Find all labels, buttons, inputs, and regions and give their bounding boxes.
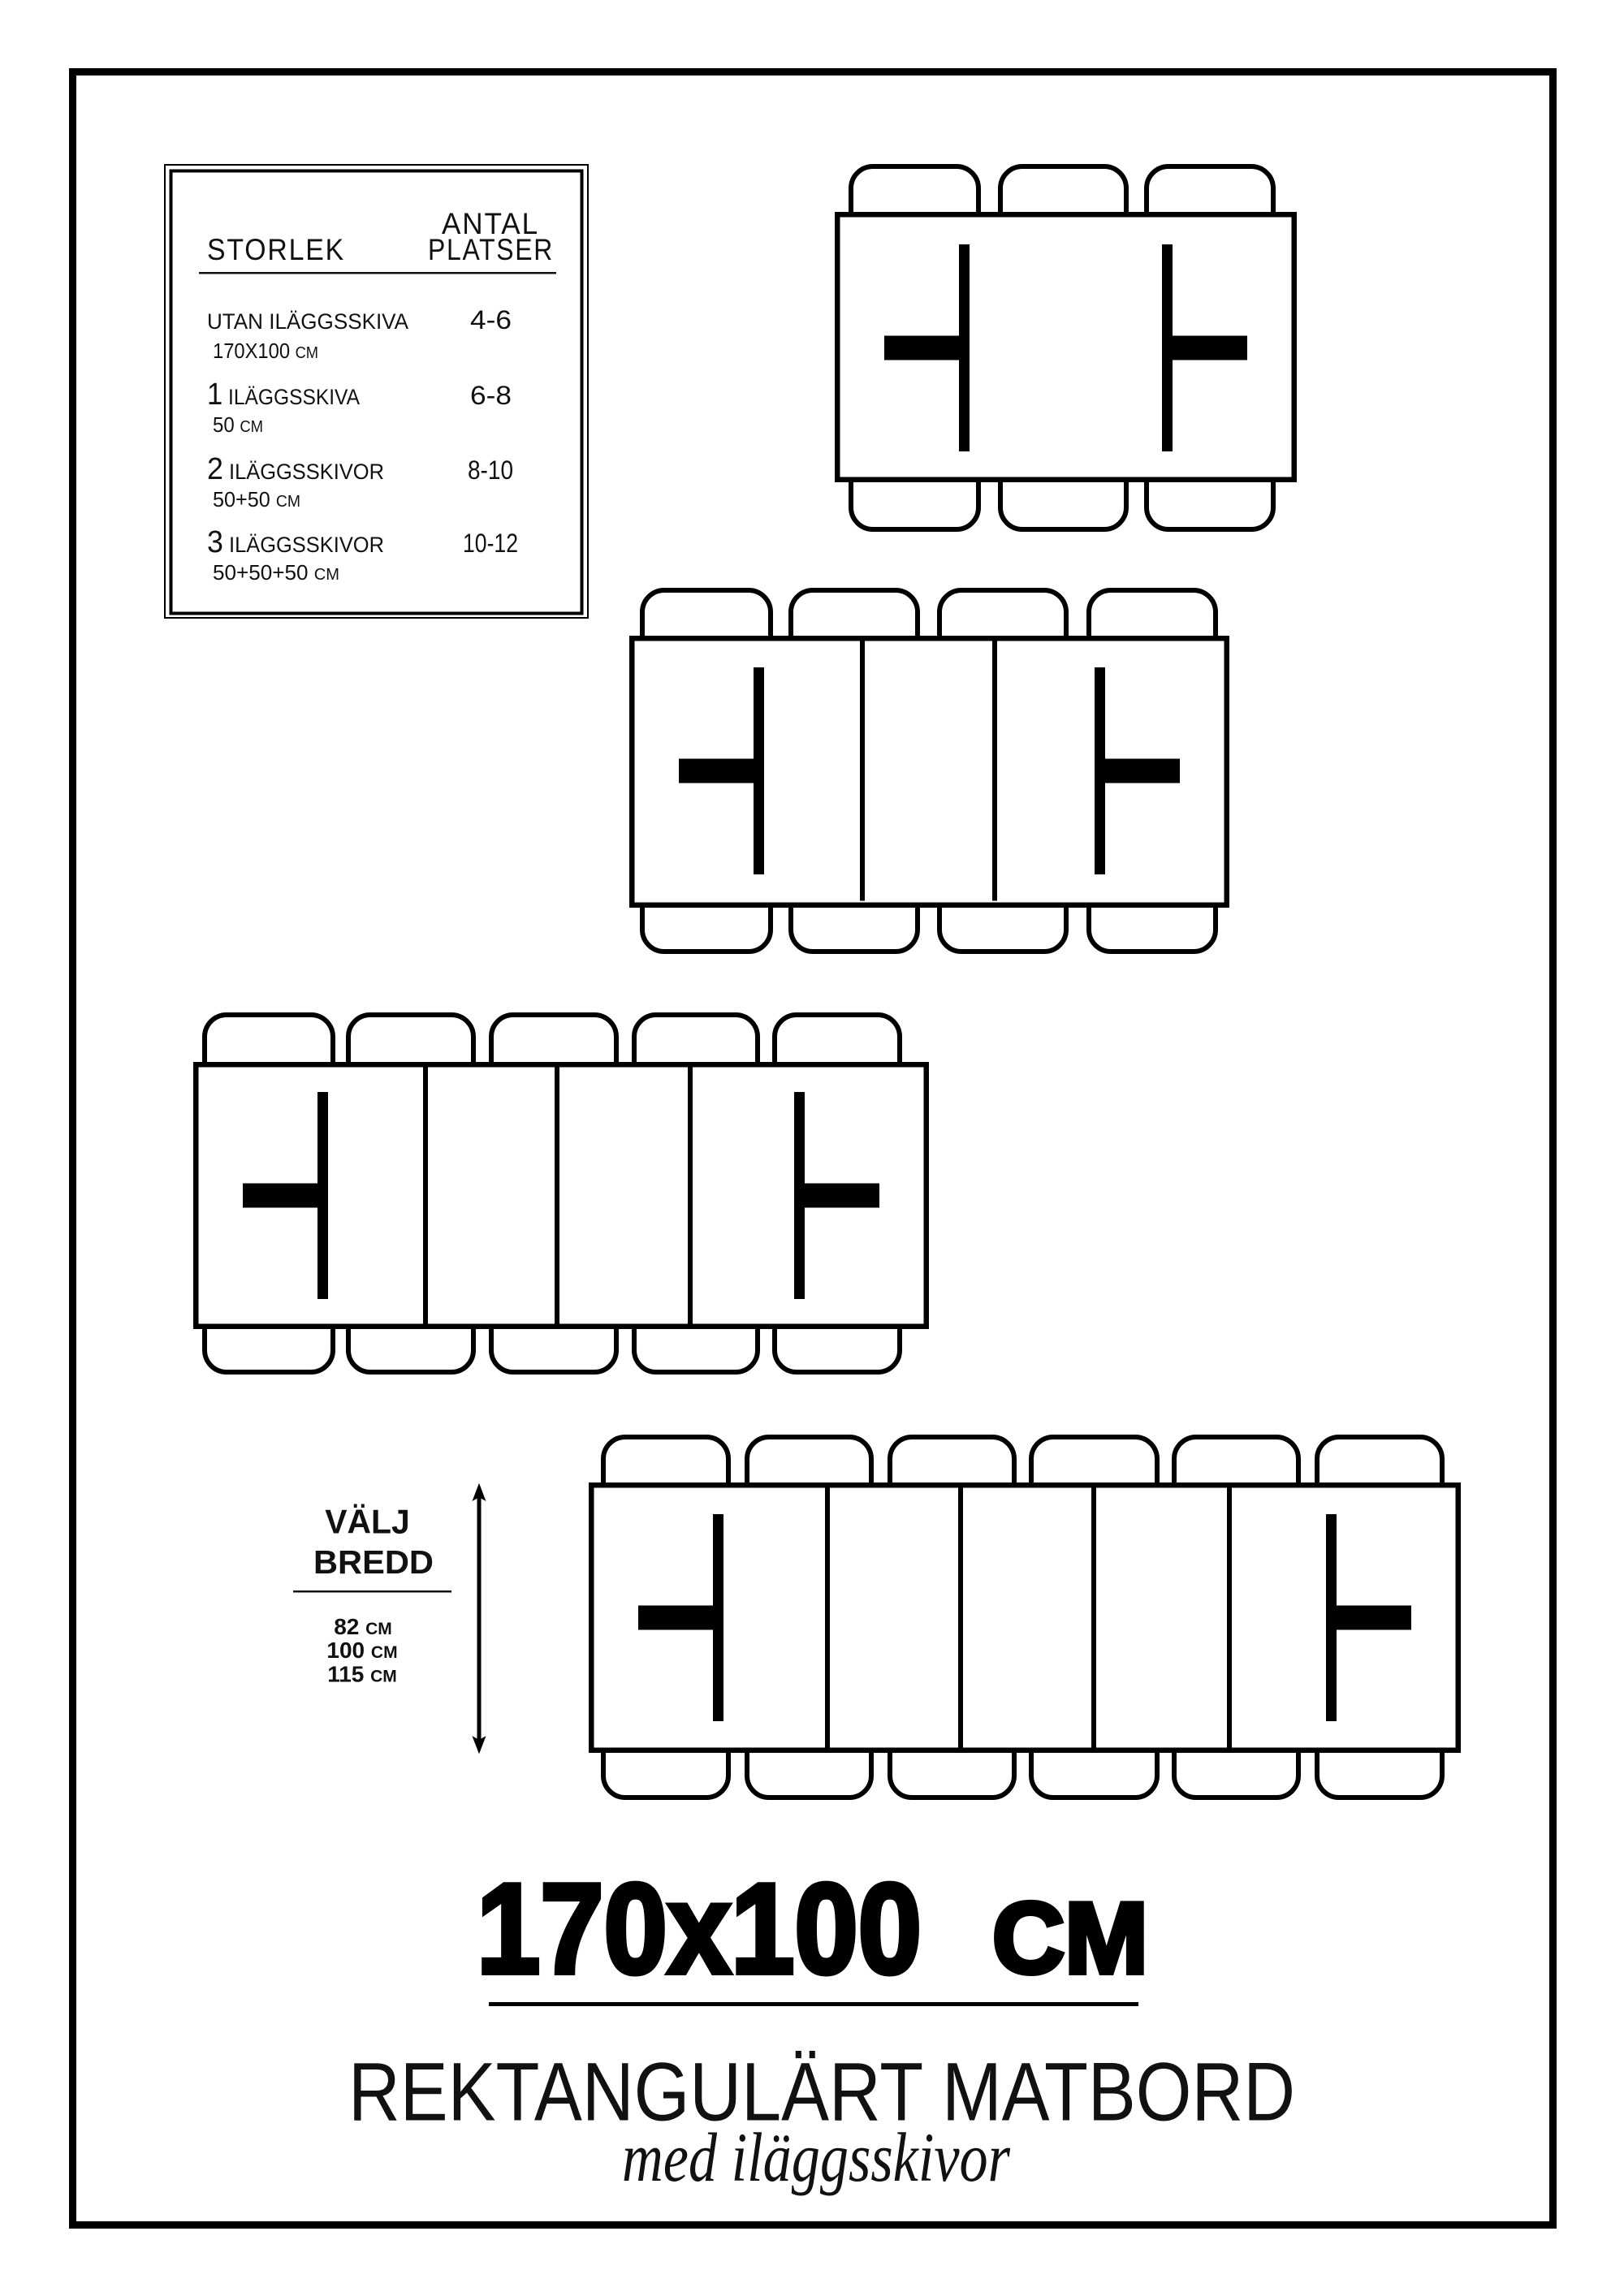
svg-text:6-8: 6-8 [470, 381, 512, 410]
svg-text:med iläggsskivor: med iläggsskivor [622, 2118, 1010, 2196]
svg-text:STORLEK: STORLEK [207, 233, 345, 266]
svg-text:CM: CM [992, 1883, 1148, 1995]
svg-text:VÄLJ: VÄLJ [325, 1503, 410, 1541]
svg-text:8-10: 8-10 [468, 455, 513, 485]
svg-text:BREDD: BREDD [313, 1543, 434, 1581]
svg-text:10-12: 10-12 [463, 529, 518, 558]
svg-text:4-6: 4-6 [470, 305, 512, 334]
svg-text:170x100: 170x100 [477, 1858, 922, 2000]
svg-text:PLATSER: PLATSER [428, 233, 554, 266]
svg-text:UTAN ILÄGGSSKIVA: UTAN ILÄGGSSKIVA [207, 309, 408, 334]
